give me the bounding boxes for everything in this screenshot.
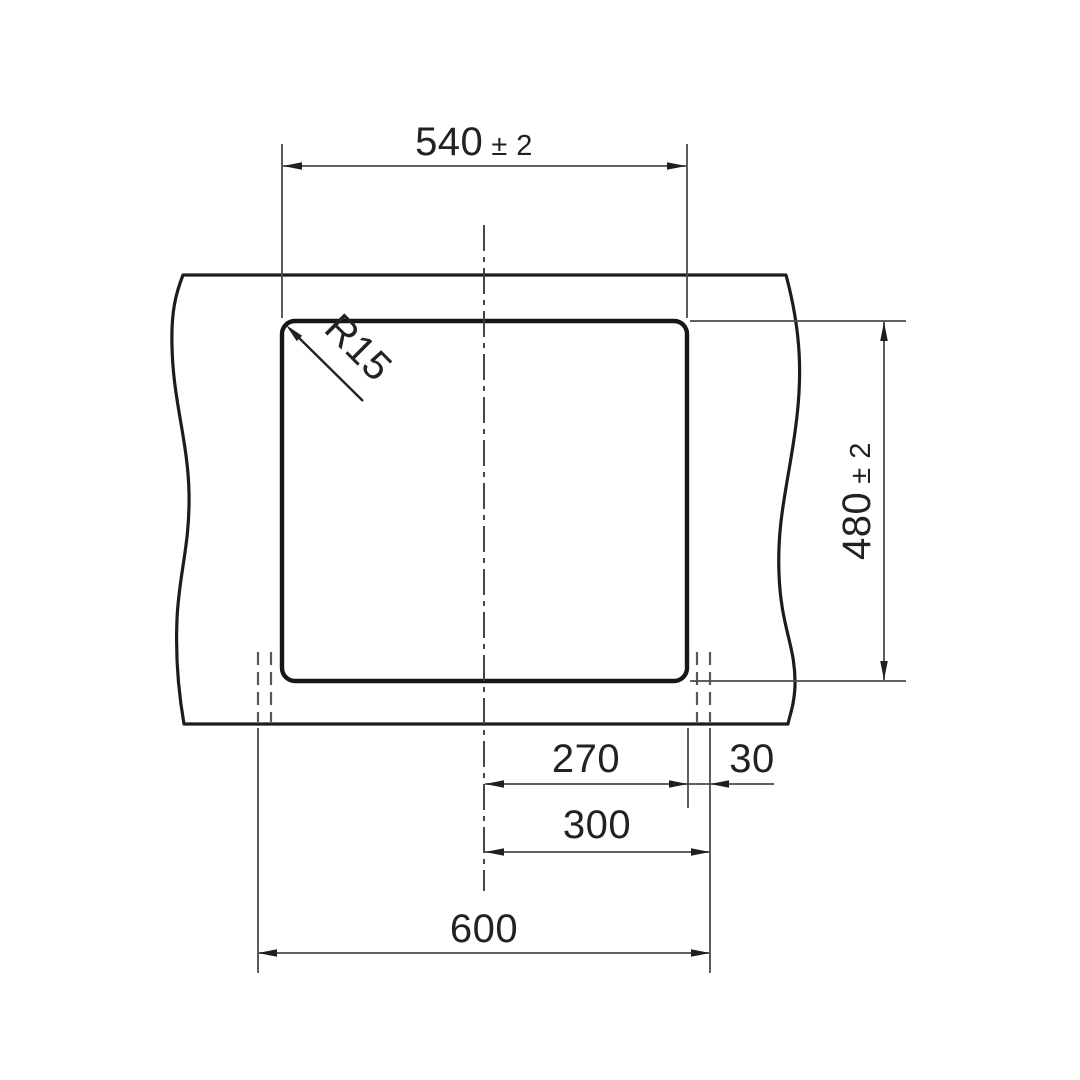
worktop-outline	[172, 275, 800, 724]
arrowhead-left	[485, 780, 504, 788]
dimension-center-to-cutout: 270	[485, 737, 688, 788]
arrowhead-left	[258, 949, 277, 957]
arrowhead-left	[485, 848, 504, 856]
dimension-label-30: 30	[729, 737, 775, 781]
arrowhead-right	[691, 949, 710, 957]
arrowhead-right	[691, 848, 710, 856]
dimension-label-480: 480± 2	[835, 442, 879, 560]
radius-label: R15	[316, 306, 400, 390]
dimension-label-600: 600	[450, 907, 518, 951]
arrowhead-right	[669, 780, 688, 788]
dimension-label-270: 270	[552, 737, 620, 781]
dimension-cutout-to-sink-edge: 30	[688, 728, 775, 808]
dimension-label-300: 300	[563, 803, 631, 847]
arrowhead-right	[667, 162, 686, 170]
sink-cutout-drawing: 540± 2 480± 2 R15 270	[0, 0, 1080, 1080]
arrowhead-right	[710, 780, 729, 788]
worktop	[172, 275, 800, 724]
arrowhead-bottom	[880, 661, 888, 680]
arrowhead-left	[283, 162, 302, 170]
arrowhead-top	[880, 322, 888, 341]
dimension-center-to-sink-edge: 300	[485, 803, 710, 856]
drawing-page: 540± 2 480± 2 R15 270	[0, 0, 1080, 1080]
dimension-label-540: 540± 2	[415, 120, 533, 164]
